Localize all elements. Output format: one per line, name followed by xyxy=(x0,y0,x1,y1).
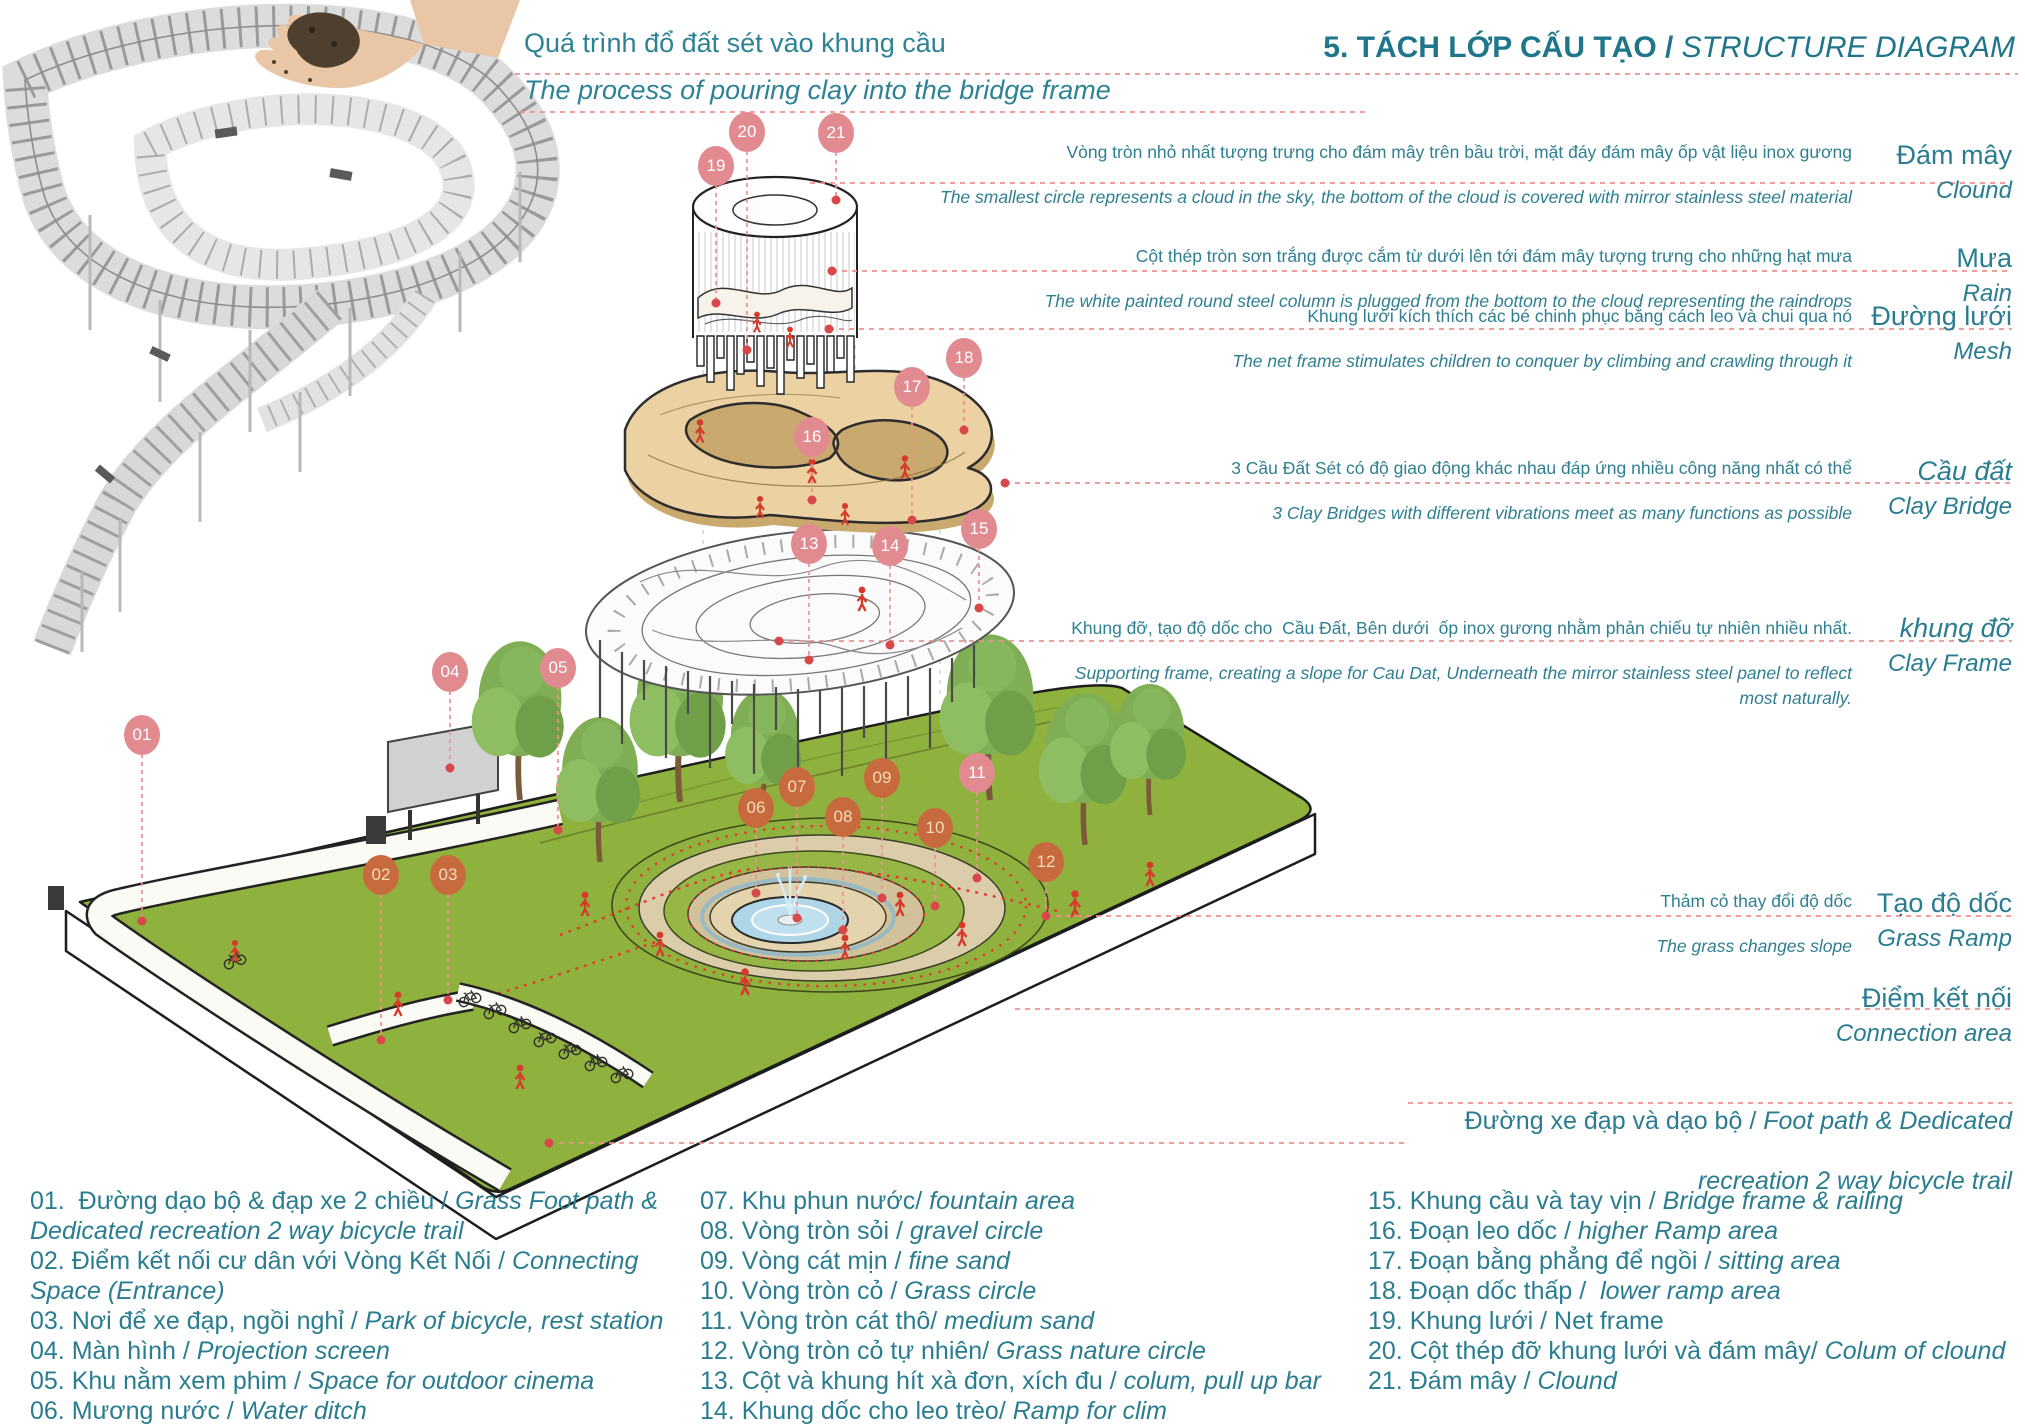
hand-caption-vn: Quá trình đổ đất sét vào khung cầu xyxy=(524,28,1111,59)
legend-item-en: Colum of clound xyxy=(1825,1337,2006,1365)
legend-item: 09. Vòng cát mịn / fine sand xyxy=(700,1246,1360,1276)
annotation-desc-rain: Cột thép tròn sơn trắng được cắm từ dưới… xyxy=(1045,246,1852,312)
balloon-20: 20 xyxy=(729,112,765,152)
annotation-label-vn: Mưa xyxy=(1956,243,2012,274)
legend-item: 07. Khu phun nước/ fountain area xyxy=(700,1186,1360,1216)
structure-diagram-page: Quá trình đổ đất sét vào khung cầu The p… xyxy=(0,0,2025,1425)
legend-item-vn: 10. Vòng tròn cỏ / xyxy=(700,1277,904,1305)
legend-item-en: medium sand xyxy=(944,1307,1094,1335)
annotation-desc-vn: Khung lưới kích thích các bé chinh phục … xyxy=(1232,306,1852,327)
legend-item-vn: 16. Đoạn leo dốc / xyxy=(1368,1217,1578,1245)
annotation-desc-vn: Thảm cỏ thay đổi độ dốc xyxy=(1656,891,1852,912)
leader-dot-01 xyxy=(138,917,147,926)
legend-item-en: lower ramp area xyxy=(1600,1277,1781,1305)
leader-dot-20 xyxy=(743,346,752,355)
balloon-09: 09 xyxy=(864,758,900,798)
legend-item-en: Clound xyxy=(1538,1367,1617,1395)
annotation-desc-vn: Khung đỡ, tạo độ dốc cho Cầu Đất, Bên dư… xyxy=(1071,618,1852,639)
legend-item: 10. Vòng tròn cỏ / Grass circle xyxy=(700,1276,1360,1306)
annotation-label-en: Clound xyxy=(1896,177,2012,205)
balloon-05: 05 xyxy=(540,648,576,688)
hand-caption-en: The process of pouring clay into the bri… xyxy=(524,75,1111,106)
balloon-12: 12 xyxy=(1028,842,1064,882)
page-title-vn: 5. TÁCH LỚP CẤU TẠO / xyxy=(1323,31,1681,64)
annotation-label-en: Connection area xyxy=(1836,1020,2012,1048)
legend-item-en: Grass circle xyxy=(904,1277,1036,1305)
annotation-desc-vn: 3 Cầu Đất Sét có độ giao động khác nhau … xyxy=(1231,458,1852,479)
legend-item-vn: 02. Điểm kết nối cư dân với Vòng Kết Nối… xyxy=(30,1247,512,1275)
leader-dot-05 xyxy=(554,826,563,835)
annotation-label-mesh: Đường lướiMesh xyxy=(1871,301,2012,366)
legend-item: 02. Điểm kết nối cư dân với Vòng Kết Nối… xyxy=(30,1246,695,1306)
annotation-label-en: Clay Frame xyxy=(1888,650,2012,678)
leader-dot-10 xyxy=(931,902,940,911)
balloon-14: 14 xyxy=(872,526,908,566)
legend-item-vn: 11. Vòng tròn cát thô/ xyxy=(700,1307,944,1335)
legend-item-vn: 06. Mương nước / xyxy=(30,1397,241,1425)
annotation-desc-clay-bridge: 3 Cầu Đất Sét có độ giao động khác nhau … xyxy=(1231,458,1852,524)
annotation-desc-vn: Cột thép tròn sơn trắng được cắm từ dưới… xyxy=(1045,246,1852,267)
leader-dot-19 xyxy=(712,299,721,308)
legend-item-en: colum, pull up bar xyxy=(1124,1367,1321,1395)
balloon-19: 19 xyxy=(698,146,734,186)
legend-item: 12. Vòng tròn cỏ tự nhiên/ Grass nature … xyxy=(700,1336,1360,1366)
legend-item-vn: 03. Nơi để xe đạp, ngồi nghỉ / xyxy=(30,1307,365,1335)
legend-item-vn: 19. Khung lưới / Net frame xyxy=(1368,1307,1664,1335)
footpath-line1: Đường xe đạp và dạo bộ / Foot path & Ded… xyxy=(1465,1107,2012,1135)
annotation-desc-vn: Vòng tròn nhỏ nhất tượng trưng cho đám m… xyxy=(940,142,1852,163)
annotation-desc-mesh: Khung lưới kích thích các bé chinh phục … xyxy=(1232,306,1852,372)
balloon-03: 03 xyxy=(430,855,466,895)
leader-dot-15 xyxy=(975,604,984,613)
balloon-02: 02 xyxy=(363,855,399,895)
legend-item-en: Projection screen xyxy=(197,1337,390,1365)
legend-item-en: Water ditch xyxy=(241,1397,367,1425)
legend-item: 11. Vòng tròn cát thô/ medium sand xyxy=(700,1306,1360,1336)
legend-item: 14. Khung dốc cho leo trèo/ Ramp for cli… xyxy=(700,1396,1360,1425)
annotation-desc-en: Supporting frame, creating a slope for C… xyxy=(1071,663,1852,684)
annotation-desc-en: The net frame stimulates children to con… xyxy=(1232,351,1852,372)
balloon-17: 17 xyxy=(894,367,930,407)
annotation-desc-en: 3 Clay Bridges with different vibrations… xyxy=(1231,503,1852,524)
annotation-desc-grass-ramp: Thảm cỏ thay đổi độ dốcThe grass changes… xyxy=(1656,891,1852,957)
balloon-18: 18 xyxy=(946,338,982,378)
leader-dot-07 xyxy=(793,914,802,923)
legend-item: 05. Khu nằm xem phim / Space for outdoor… xyxy=(30,1366,695,1396)
legend-item-vn: 15. Khung cầu và tay vịn / xyxy=(1368,1187,1663,1215)
balloon-21: 21 xyxy=(818,113,854,153)
legend-item-en: sitting area xyxy=(1718,1247,1840,1275)
balloon-08: 08 xyxy=(825,797,861,837)
legend-item-vn: 13. Cột và khung hít xà đơn, xích đu / xyxy=(700,1367,1124,1395)
legend-item-en: fountain area xyxy=(929,1187,1075,1215)
annotation-label-clay-bridge: Cầu đấtClay Bridge xyxy=(1888,456,2012,521)
page-title: 5. TÁCH LỚP CẤU TẠO / STRUCTURE DIAGRAM xyxy=(1323,31,2015,65)
annotation-label-vn: Cầu đất xyxy=(1888,456,2012,487)
legend-item-en: Space for outdoor cinema xyxy=(308,1367,594,1395)
leader-dot-21 xyxy=(832,196,841,205)
legend-item: 20. Cột thép đỡ khung lưới và đám mây/ C… xyxy=(1368,1336,2018,1366)
cloud-cylinder-drawing xyxy=(693,177,857,394)
legend-item: 19. Khung lưới / Net frame xyxy=(1368,1306,2018,1336)
annotation-label-clay-frame: khung đỡClay Frame xyxy=(1888,613,2012,678)
annotation-label-vn: Đám mây xyxy=(1896,140,2012,171)
annotation-label-en: Clay Bridge xyxy=(1888,493,2012,521)
legend-column-2: 07. Khu phun nước/ fountain area08. Vòng… xyxy=(700,1186,1360,1425)
legend-item-vn: 07. Khu phun nước/ xyxy=(700,1187,929,1215)
balloon-16: 16 xyxy=(794,417,830,457)
leader-dot-12 xyxy=(1042,912,1051,921)
legend-item-vn: 08. Vòng tròn sỏi / xyxy=(700,1217,910,1245)
legend-item-vn: 17. Đoạn bằng phẳng để ngồi / xyxy=(1368,1247,1718,1275)
leader-dot-06 xyxy=(752,889,761,898)
leader-dot-09 xyxy=(878,894,887,903)
balloon-11: 11 xyxy=(959,753,995,793)
balloon-13: 13 xyxy=(791,524,827,564)
annotation-desc-en: The grass changes slope xyxy=(1656,936,1852,957)
balloon-04: 04 xyxy=(432,652,468,692)
annotation-label-cloud: Đám mâyClound xyxy=(1896,140,2012,205)
leader-dot-16 xyxy=(808,496,817,505)
legend-item-vn: 05. Khu nằm xem phim / xyxy=(30,1367,308,1395)
legend-item: 17. Đoạn bằng phẳng để ngồi / sitting ar… xyxy=(1368,1246,2018,1276)
leader-dot-08 xyxy=(839,926,848,935)
legend-item: 18. Đoạn dốc thấp / lower ramp area xyxy=(1368,1276,2018,1306)
leader-dot-11 xyxy=(973,874,982,883)
annotation-desc-en2-clay-frame: most naturally. xyxy=(1740,688,1853,709)
legend-item-en: Ramp for clim xyxy=(1013,1397,1167,1425)
annotation-label-vn: Điểm kết nối xyxy=(1836,983,2012,1014)
leader-dot-17 xyxy=(908,516,917,525)
legend-item: 01. Đường dạo bộ & đạp xe 2 chiều / Gras… xyxy=(30,1186,695,1246)
balloon-15: 15 xyxy=(961,509,997,549)
legend-item: 21. Đám mây / Clound xyxy=(1368,1366,2018,1396)
legend-item: 08. Vòng tròn sỏi / gravel circle xyxy=(700,1216,1360,1246)
balloon-06: 06 xyxy=(738,788,774,828)
legend-item: 06. Mương nước / Water ditch xyxy=(30,1396,695,1425)
legend-item-en: higher Ramp area xyxy=(1578,1217,1778,1245)
balloon-07: 07 xyxy=(779,767,815,807)
annotation-label-vn: Tạo độ dốc xyxy=(1877,888,2012,919)
balloon-01: 01 xyxy=(124,715,160,755)
annotation-label-grass-ramp: Tạo độ dốcGrass Ramp xyxy=(1877,888,2012,953)
legend-item-en: Grass nature circle xyxy=(996,1337,1206,1365)
annotation-label-connection: Điểm kết nốiConnection area xyxy=(1836,983,2012,1048)
bridge-sketch-drawing xyxy=(25,26,538,652)
legend-item: 13. Cột và khung hít xà đơn, xích đu / c… xyxy=(700,1366,1360,1396)
legend-item-vn: 20. Cột thép đỡ khung lưới và đám mây/ xyxy=(1368,1337,1825,1365)
leader-dot-14 xyxy=(886,641,895,650)
legend-item-vn: 04. Màn hình / xyxy=(30,1337,197,1365)
legend-item: 03. Nơi để xe đạp, ngồi nghỉ / Park of b… xyxy=(30,1306,695,1336)
legend-item-en: Park of bicycle, rest station xyxy=(365,1307,664,1335)
page-title-en: STRUCTURE DIAGRAM xyxy=(1682,31,2015,64)
annotation-label-en: Grass Ramp xyxy=(1877,925,2012,953)
leader-dot-18 xyxy=(960,426,969,435)
leader-dot-02 xyxy=(377,1036,386,1045)
legend-item-vn: 21. Đám mây / xyxy=(1368,1367,1538,1395)
annotation-desc-cloud: Vòng tròn nhỏ nhất tượng trưng cho đám m… xyxy=(940,142,1852,208)
park-field-drawing xyxy=(48,634,1315,1239)
legend-item-en: gravel circle xyxy=(910,1217,1043,1245)
legend-item-vn: 09. Vòng cát mịn / xyxy=(700,1247,908,1275)
legend-item-en: fine sand xyxy=(908,1247,1009,1275)
legend-column-1: 01. Đường dạo bộ & đạp xe 2 chiều / Gras… xyxy=(30,1186,695,1425)
annotation-label-en: Mesh xyxy=(1871,338,2012,366)
legend-item-en: Bridge frame & railing xyxy=(1663,1187,1903,1215)
leader-dot-04 xyxy=(446,764,455,773)
leader-dot-13 xyxy=(805,656,814,665)
annotation-desc-clay-frame: Khung đỡ, tạo độ dốc cho Cầu Đất, Bên dư… xyxy=(1071,618,1852,684)
legend-item-vn: 18. Đoạn dốc thấp / xyxy=(1368,1277,1600,1305)
legend-item-vn: 01. Đường dạo bộ & đạp xe 2 chiều / xyxy=(30,1187,455,1215)
legend-item: 04. Màn hình / Projection screen xyxy=(30,1336,695,1366)
legend-item-vn: 14. Khung dốc cho leo trèo/ xyxy=(700,1397,1013,1425)
annotation-label-vn: Đường lưới xyxy=(1871,301,2012,332)
legend-item: 16. Đoạn leo dốc / higher Ramp area xyxy=(1368,1216,2018,1246)
annotation-label-rain: MưaRain xyxy=(1956,243,2012,308)
annotation-desc-en: The smallest circle represents a cloud i… xyxy=(940,187,1852,208)
legend-item-vn: 12. Vòng tròn cỏ tự nhiên/ xyxy=(700,1337,996,1365)
leader-dot-03 xyxy=(444,996,453,1005)
balloon-10: 10 xyxy=(917,808,953,848)
hand-caption: Quá trình đổ đất sét vào khung cầu The p… xyxy=(524,28,1111,106)
annotation-label-vn: khung đỡ xyxy=(1888,613,2012,644)
legend-column-3: 15. Khung cầu và tay vịn / Bridge frame … xyxy=(1368,1186,2018,1396)
legend-item: 15. Khung cầu và tay vịn / Bridge frame … xyxy=(1368,1186,2018,1216)
